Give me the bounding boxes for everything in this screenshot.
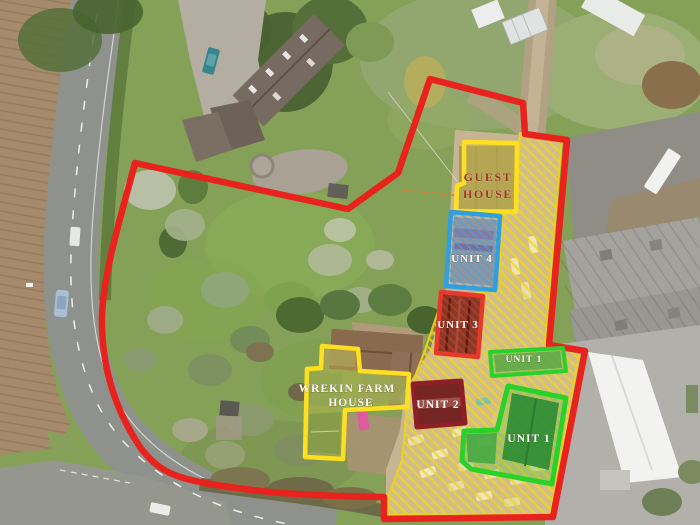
- label-guest-house-line1: GUEST: [464, 170, 513, 184]
- van-white: [69, 227, 80, 247]
- zone-unit-2: UNIT 2: [413, 381, 465, 427]
- zone-unit-3: UNIT 3: [436, 292, 483, 357]
- label-unit-1-main: UNIT 1: [507, 433, 550, 445]
- label-farmhouse-line1: WREKIN FARM: [299, 383, 396, 395]
- label-farmhouse-line2: HOUSE: [328, 397, 373, 409]
- garden-shed: [327, 183, 348, 199]
- garden-circle-feature: [251, 155, 273, 177]
- aerial-site-plan: GUEST HOUSE UNIT 4 UNIT 3 UNIT 2 UNIT 1: [0, 0, 700, 525]
- zone-unit-4: UNIT 4: [446, 212, 500, 290]
- car-blue-roof: [56, 296, 66, 310]
- aerial-photo: [0, 0, 700, 525]
- road-sign: [26, 283, 33, 287]
- label-unit-1-upper: UNIT 1: [506, 355, 543, 365]
- label-unit-3: UNIT 3: [437, 319, 479, 331]
- dirt-patch: [642, 61, 700, 109]
- zone-unit-1-upper: UNIT 1: [490, 348, 566, 376]
- label-unit-2: UNIT 2: [416, 399, 459, 411]
- label-unit-4: UNIT 4: [451, 253, 493, 265]
- label-guest-house-line2: HOUSE: [463, 187, 513, 201]
- small-garage: [219, 400, 239, 417]
- zone-guest-house: GUEST HOUSE: [456, 142, 517, 212]
